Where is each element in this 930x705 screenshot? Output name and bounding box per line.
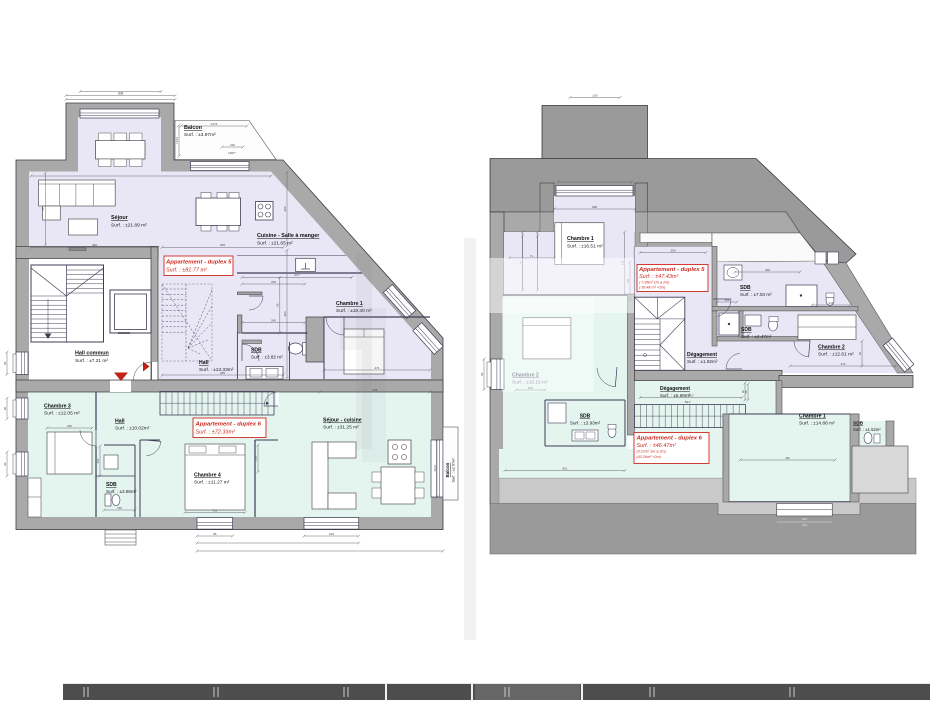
svg-text:Surf. : ±3.93m²: Surf. : ±3.93m² — [570, 421, 601, 426]
svg-text:(3.21m² 1m à 2m): (3.21m² 1m à 2m) — [637, 450, 667, 454]
svg-text:Appartement - duplex 6: Appartement - duplex 6 — [636, 436, 703, 442]
svg-text:( 7.95m² 1m à 2m): ( 7.95m² 1m à 2m) — [639, 281, 670, 285]
svg-text:Appartement - duplex 5: Appartement - duplex 5 — [638, 267, 705, 273]
svg-text:96: 96 — [480, 372, 484, 376]
svg-text:Balcon: Balcon — [445, 462, 450, 477]
svg-text:Surf. : ±5.69m²: Surf. : ±5.69m² — [660, 393, 691, 398]
svg-text:Surf. : ±1.92m²: Surf. : ±1.92m² — [687, 359, 718, 364]
svg-text:Surf. : ±81.77 m²: Surf. : ±81.77 m² — [166, 268, 207, 274]
svg-text:Surf. : ±2.47m²: Surf. : ±2.47m² — [741, 334, 772, 339]
svg-text:Surf. : ±21.89 m²: Surf. : ±21.89 m² — [111, 223, 147, 229]
svg-text:60: 60 — [858, 352, 862, 356]
svg-text:±272: ±272 — [211, 122, 218, 126]
svg-text:295: 295 — [220, 243, 225, 247]
svg-text:±124: ±124 — [433, 465, 437, 472]
svg-text:276: 276 — [254, 456, 258, 461]
svg-text:Surf. : ±7.21 m²: Surf. : ±7.21 m² — [75, 358, 108, 364]
svg-text:Surf. : ±46.47m²: Surf. : ±46.47m² — [637, 443, 677, 449]
svg-text:Chambre 4: Chambre 4 — [194, 473, 221, 479]
svg-text:96: 96 — [3, 462, 7, 466]
svg-text:Hall: Hall — [115, 419, 125, 425]
svg-text:SDB: SDB — [580, 414, 591, 420]
svg-text:411: 411 — [213, 508, 218, 512]
svg-text:Appartement - duplex 6: Appartement - duplex 6 — [195, 422, 262, 428]
svg-text:SDB: SDB — [106, 482, 117, 488]
svg-text:163: 163 — [802, 523, 807, 527]
svg-text:Surf. : ±11.27 m²: Surf. : ±11.27 m² — [194, 480, 230, 486]
svg-text:801: 801 — [563, 466, 568, 470]
svg-text:Surf. : ±21.65 m²: Surf. : ±21.65 m² — [257, 240, 293, 246]
svg-text:96: 96 — [3, 407, 7, 411]
svg-text:308: 308 — [592, 205, 597, 209]
svg-text:Hall commun: Hall commun — [75, 351, 109, 357]
svg-text:Surf. : ±3.86m²: Surf. : ±3.86m² — [106, 489, 137, 494]
svg-text:Appartement - duplex 5: Appartement - duplex 5 — [165, 260, 232, 266]
svg-text:Hall: Hall — [199, 360, 209, 366]
svg-text:SDB: SDB — [740, 285, 751, 291]
svg-text:±124: ±124 — [175, 137, 179, 144]
svg-text:96: 96 — [3, 361, 7, 365]
svg-text:155: 155 — [117, 506, 122, 510]
svg-text:Surf. : ±12.61 m²: Surf. : ±12.61 m² — [818, 352, 854, 358]
svg-text:Surf. : ±2.07m²: Surf. : ±2.07m² — [452, 457, 456, 483]
svg-text:Séjour: Séjour — [111, 215, 129, 221]
svg-text:245: 245 — [271, 280, 276, 284]
svg-text:430: 430 — [96, 458, 100, 463]
svg-text:SDB: SDB — [853, 421, 864, 427]
svg-text:Surf. : ±14.88 m²: Surf. : ±14.88 m² — [799, 421, 835, 427]
svg-text:471°: 471° — [294, 273, 300, 277]
svg-text:96: 96 — [213, 532, 217, 536]
svg-text:Surf. : ±3.97m²: Surf. : ±3.97m² — [184, 132, 216, 138]
svg-text:Surf. : ±7.03 m²: Surf. : ±7.03 m² — [740, 292, 772, 297]
svg-text:SDB: SDB — [741, 327, 752, 333]
svg-text:±367°: ±367° — [228, 151, 237, 155]
svg-text:400: 400 — [765, 268, 770, 272]
svg-text:303: 303 — [283, 311, 287, 316]
svg-text:Chambre 3: Chambre 3 — [44, 404, 71, 410]
svg-text:269: 269 — [725, 298, 730, 302]
svg-text:Surf. : ±47.43m²: Surf. : ±47.43m² — [639, 274, 679, 280]
svg-text:501°: 501° — [685, 400, 692, 404]
svg-text:Chambre 1: Chambre 1 — [799, 414, 826, 420]
svg-text:Surf. : ±10.02m²: Surf. : ±10.02m² — [115, 426, 150, 432]
svg-text:206: 206 — [283, 206, 287, 211]
svg-text:SDB: SDB — [251, 348, 262, 354]
svg-text:220: 220 — [802, 517, 807, 521]
svg-text:436: 436 — [785, 456, 790, 460]
svg-text:Dégagement: Dégagement — [660, 386, 690, 392]
svg-text:(43.26m² +2m): (43.26m² +2m) — [637, 455, 662, 459]
svg-text:473: 473 — [841, 362, 846, 366]
svg-text:Cuisine - Salle à manger: Cuisine - Salle à manger — [257, 233, 320, 239]
svg-text:Surf. : ±1.52m²: Surf. : ±1.52m² — [853, 427, 881, 432]
svg-text:290: 290 — [670, 248, 675, 252]
svg-text:213: 213 — [829, 301, 834, 305]
svg-text:250: 250 — [67, 424, 72, 428]
svg-text:Surf. : ±31.25 m²: Surf. : ±31.25 m² — [323, 425, 359, 431]
svg-text:Dégagement: Dégagement — [687, 352, 717, 358]
svg-text:490: 490 — [92, 243, 97, 247]
svg-text:210: 210 — [329, 532, 334, 536]
svg-text:Chambre 2: Chambre 2 — [818, 345, 845, 351]
svg-text:103: 103 — [592, 93, 597, 97]
svg-text:Surf. : ±72.33m²: Surf. : ±72.33m² — [196, 430, 236, 436]
svg-text:56: 56 — [41, 207, 45, 211]
svg-text:Surf. : ±16.51 m²: Surf. : ±16.51 m² — [567, 244, 603, 250]
svg-text:245: 245 — [271, 318, 276, 322]
svg-text:( 39.48 m² +2m): ( 39.48 m² +2m) — [639, 286, 666, 290]
svg-text:Surf. : ±13.33m²: Surf. : ±13.33m² — [199, 367, 234, 373]
svg-text:Surf. : ±3.82 m²: Surf. : ±3.82 m² — [251, 355, 283, 360]
svg-text:Surf. : ±12.05 m²: Surf. : ±12.05 m² — [44, 411, 80, 417]
svg-text:308: 308 — [118, 91, 124, 95]
svg-text:210: 210 — [230, 143, 235, 147]
svg-text:Chambre 1: Chambre 1 — [567, 236, 594, 242]
svg-text:Séjour - cuisine: Séjour - cuisine — [323, 418, 362, 424]
